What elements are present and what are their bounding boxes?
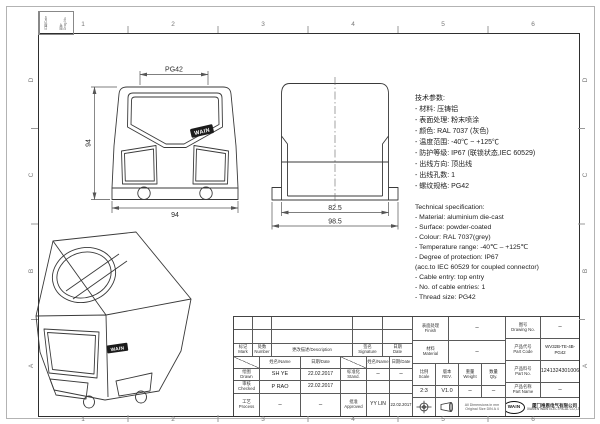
empty-cell: [367, 381, 390, 394]
company-names: 厦门唯恩电气有限公司 XIAMEN WAIN ELECTRICAL CO.,LT…: [527, 403, 579, 412]
company-name-en: XIAMEN WAIN ELECTRICAL CO.,LTD: [527, 408, 579, 412]
rev-number-header: 处数 Number: [253, 344, 272, 357]
cone-symbol-cell: [436, 398, 459, 416]
iso-front-panel-outer: [44, 329, 99, 378]
front-boss-right: [200, 187, 212, 199]
rev-value: V1.0: [436, 386, 459, 398]
rev-signature-header: 签名 Signature: [353, 344, 383, 357]
dimension-note-cell: All Dimensions in mm Original Size DIN A…: [459, 398, 506, 416]
process-date: –: [301, 394, 341, 416]
rev-empty-cell: [234, 330, 253, 344]
approved-date: 22.02.2017: [390, 394, 413, 416]
rev-empty-cell: [253, 317, 272, 330]
sig-date-header-2: 日期/Date: [390, 357, 413, 369]
checked-name: P RAO: [260, 381, 301, 394]
dim-width-94: 94: [171, 212, 179, 219]
rev-empty-cell: [353, 330, 383, 344]
rev-empty-cell: [272, 317, 353, 330]
drawn-name: SH YE: [260, 369, 301, 381]
dim-82-5: 82.5: [328, 205, 342, 212]
note-line-2: Original Size DIN A 4: [465, 407, 499, 411]
standardization-date: –: [390, 369, 413, 381]
dim-pg42: PG42: [165, 67, 183, 74]
iso-front-panel-inner: [48, 333, 96, 375]
drawing-no-value: –: [541, 317, 579, 339]
isometric-view: [36, 232, 191, 408]
empty-cell: [390, 381, 413, 394]
iso-silhouette: [36, 241, 191, 400]
rev-empty-cell: [272, 330, 353, 344]
material-label: 材料 Material: [413, 341, 449, 364]
iso-top-face: [53, 232, 191, 315]
drawn-date: 22.02.2017: [301, 369, 341, 381]
front-top-window-outer: [128, 93, 223, 148]
front-top-window-inner: [131, 97, 219, 144]
projection-symbol-cell: [413, 398, 436, 416]
front-dimensions: [91, 71, 238, 213]
rev-empty-cell: [253, 330, 272, 344]
process-label: 工艺 Process: [234, 394, 260, 416]
part-no-value: 1241324301006: [541, 361, 579, 383]
front-right-window-inner: [196, 149, 226, 181]
iso-hole-band: [66, 254, 127, 299]
dim-height-94: 94: [86, 139, 93, 147]
finish-label: 表面处理 Finish: [413, 317, 449, 341]
front-body-outline: [112, 87, 238, 188]
material-value: –: [449, 341, 506, 364]
empty-cell: [341, 381, 367, 394]
process-name: –: [260, 394, 301, 416]
front-view: [112, 87, 238, 200]
front-base-strip: [112, 188, 238, 200]
part-code-value: WV32B-TE-4B-PG42: [541, 339, 579, 361]
sig-date-header: 日期/Date: [301, 357, 341, 369]
approved-label: 批准 Approved: [341, 394, 367, 416]
scale-value: 2:3: [413, 386, 436, 398]
truncated-cone-icon: [438, 401, 456, 413]
rev-description-header: 更改描述/Description: [272, 344, 353, 357]
rev-mark-header: 标记 Mark: [234, 344, 253, 357]
checked-label: 审核 Checked: [234, 381, 260, 394]
company-cell: WAIN 厦门唯恩电气有限公司 XIAMEN WAIN ELECTRICAL C…: [506, 398, 579, 416]
part-name-label: 产品名称 Part Name: [506, 383, 541, 398]
sig-diagonal-cell: [234, 357, 260, 369]
sig-name-header-2: 姓名/Name: [367, 357, 390, 369]
rev-empty-cell: [383, 317, 413, 330]
scale-label: 比例 Scale: [413, 364, 436, 386]
rev-date-header: 日期 Date: [383, 344, 413, 357]
rev-empty-cell: [353, 317, 383, 330]
weight-label: 重量 Weight: [459, 364, 482, 386]
rev-label: 版本 REV.: [436, 364, 459, 386]
part-no-label: 产品料号 Part No.: [506, 361, 541, 383]
wain-logo: WAIN: [506, 401, 525, 414]
sig-name-header: 姓名/Name: [260, 357, 301, 369]
rev-empty-cell: [383, 330, 413, 344]
iso-peg-left: [84, 396, 95, 408]
sig-diagonal-cell: [341, 357, 367, 369]
front-wain-badge: WAIN: [190, 124, 214, 138]
qty-label: 数量 Qty.: [482, 364, 506, 386]
iso-right-flap: [116, 373, 152, 396]
dim-98-5: 98.5: [328, 219, 342, 226]
first-angle-projection-icon: [415, 400, 433, 414]
front-boss-left: [138, 187, 150, 199]
front-left-window-inner: [125, 149, 155, 181]
drawing-no-label: 图号 Drawing No.: [506, 317, 541, 339]
part-name-value: –: [541, 383, 579, 398]
checked-date: 22.02.2017: [301, 381, 341, 394]
part-code-label: 产品代号 Part Code: [506, 339, 541, 361]
approved-name: YY LIN: [367, 394, 390, 416]
finish-value: –: [449, 317, 506, 341]
drawn-label: 绘图 Drawn: [234, 369, 260, 381]
iso-wain-badge: WAIN: [106, 343, 128, 354]
title-block: 标记 Mark 处数 Number 更改描述/Description 签名 Si…: [233, 316, 579, 416]
rev-empty-cell: [234, 317, 253, 330]
qty-value: –: [482, 386, 506, 398]
standardization-name: –: [367, 369, 390, 381]
weight-value: –: [459, 386, 482, 398]
standardization-label: 标准化 Stand.: [341, 369, 367, 381]
engineering-drawing-sheet: { "sheet": { "grid_top": ["1","2","3","4…: [0, 0, 600, 424]
